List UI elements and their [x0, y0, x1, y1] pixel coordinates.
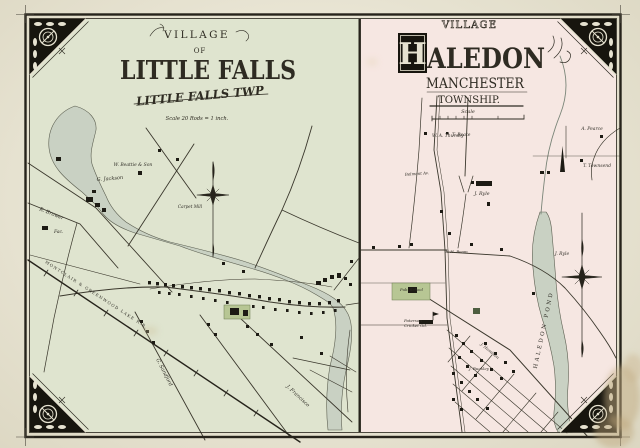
right-scale-note: Scale [461, 109, 475, 115]
map-canvas: VILLAGE OF LITTLE FALLS LITTLE FALLS TWP… [0, 0, 640, 448]
left-title-of: OF [194, 47, 207, 55]
right-title-township2: TOWNSHIP. [438, 95, 500, 106]
left-title-name: LITTLE FALLS [120, 56, 296, 86]
left-scale-note: Scale 20 Rods = 1 inch. [166, 116, 229, 122]
atlas-page: VILLAGE OF LITTLE FALLS LITTLE FALLS TWP… [0, 0, 640, 448]
left-title-village: VILLAGE [163, 29, 230, 41]
right-title-village: VILLAGE [441, 20, 498, 31]
right-title-name: ALEDON [426, 42, 545, 75]
right-title-initial: H [398, 37, 426, 72]
panel-divider [359, 19, 361, 432]
right-title-township1: MANCHESTER [426, 76, 525, 92]
